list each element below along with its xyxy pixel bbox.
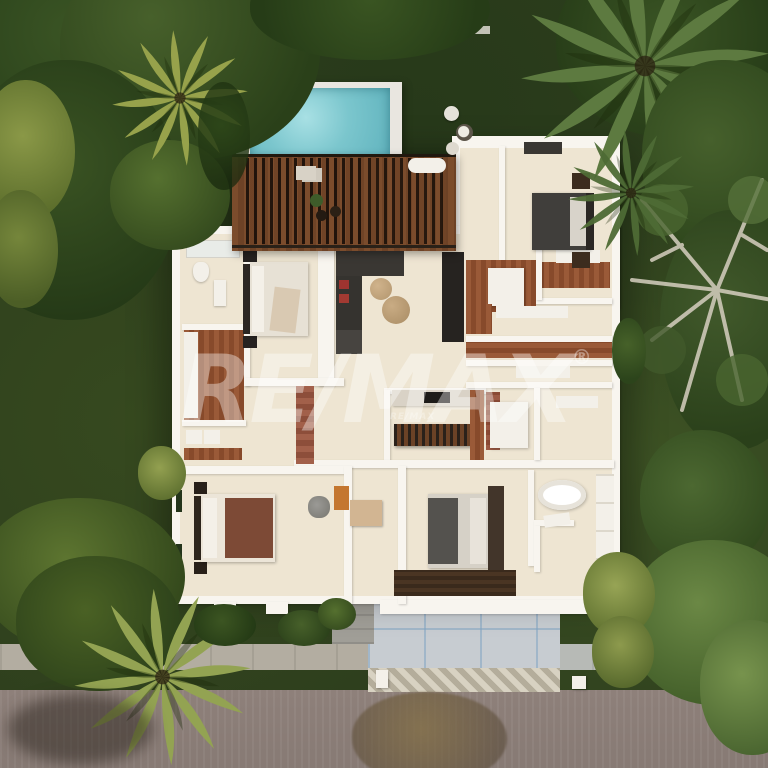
driveway-apron <box>368 668 560 692</box>
bed2-pillows <box>252 266 264 332</box>
bed2-headboard <box>243 264 250 334</box>
deck-dining-set <box>316 210 327 221</box>
bush-small-left-yellow <box>138 446 186 500</box>
bathroom1-sink <box>214 280 226 306</box>
remax-watermark-small: RE/MAX <box>390 412 435 422</box>
wall-bath3-inner-v <box>534 526 540 572</box>
office-chair <box>308 496 330 518</box>
foliage-over-deck-corner <box>198 82 250 190</box>
remax-watermark-text: RE/MAX <box>180 336 572 445</box>
bed3-nightstand-top <box>194 482 207 494</box>
utility-post-left <box>376 670 388 688</box>
utility-post-right <box>572 676 586 689</box>
bush-right-wall <box>612 318 646 384</box>
toilet <box>193 262 209 282</box>
rightcol-desk <box>496 306 568 318</box>
bed4-pillows <box>470 498 486 564</box>
aerial-render-scene: RE/MAX® RE/MAX <box>0 0 768 768</box>
garden-pot-3 <box>446 142 459 155</box>
office-desk <box>350 500 382 526</box>
bush-yellow-right-of-driveway-2 <box>592 616 654 688</box>
bed3-pillows <box>203 498 217 558</box>
wall-dining-right <box>536 244 542 300</box>
orange-mat <box>334 486 349 510</box>
sofa-horizontal-arm <box>336 250 404 276</box>
red-pillow-1 <box>339 280 349 289</box>
tv-console <box>442 252 464 342</box>
garden-pot-2 <box>456 124 473 141</box>
deck-lounge-chairs <box>296 166 316 180</box>
road-shadow-left <box>8 694 153 764</box>
front-yard-bush-3 <box>318 598 356 630</box>
deck-plant <box>310 194 323 207</box>
bed4-headboard-unit <box>488 486 504 578</box>
red-pillow-2 <box>339 294 349 303</box>
wall-bedroom3-top <box>182 466 344 474</box>
front-yard-bush-1 <box>194 604 256 646</box>
laundry-counter <box>184 448 242 460</box>
entry-porch-deck <box>394 570 516 596</box>
garden-bench <box>408 158 446 173</box>
bed3-nightstand-bottom <box>194 562 207 574</box>
pouf-large <box>382 296 410 324</box>
garden-pot-1 <box>444 106 459 121</box>
bathtub <box>538 480 586 510</box>
bed2-throw-blanket <box>269 287 300 334</box>
rightcol-wood-A <box>466 304 492 334</box>
registered-trademark-symbol: ® <box>572 345 592 369</box>
bed3-headboard <box>194 496 201 560</box>
dining-table <box>488 268 524 306</box>
bed3-blanket <box>225 498 273 558</box>
deck-railing-south <box>232 245 456 248</box>
bed2-nightstand-top <box>243 250 257 262</box>
remax-watermark: RE/MAX® <box>180 344 600 438</box>
bed4-blanket <box>428 498 458 564</box>
palm-fronds-over-house <box>566 108 696 278</box>
